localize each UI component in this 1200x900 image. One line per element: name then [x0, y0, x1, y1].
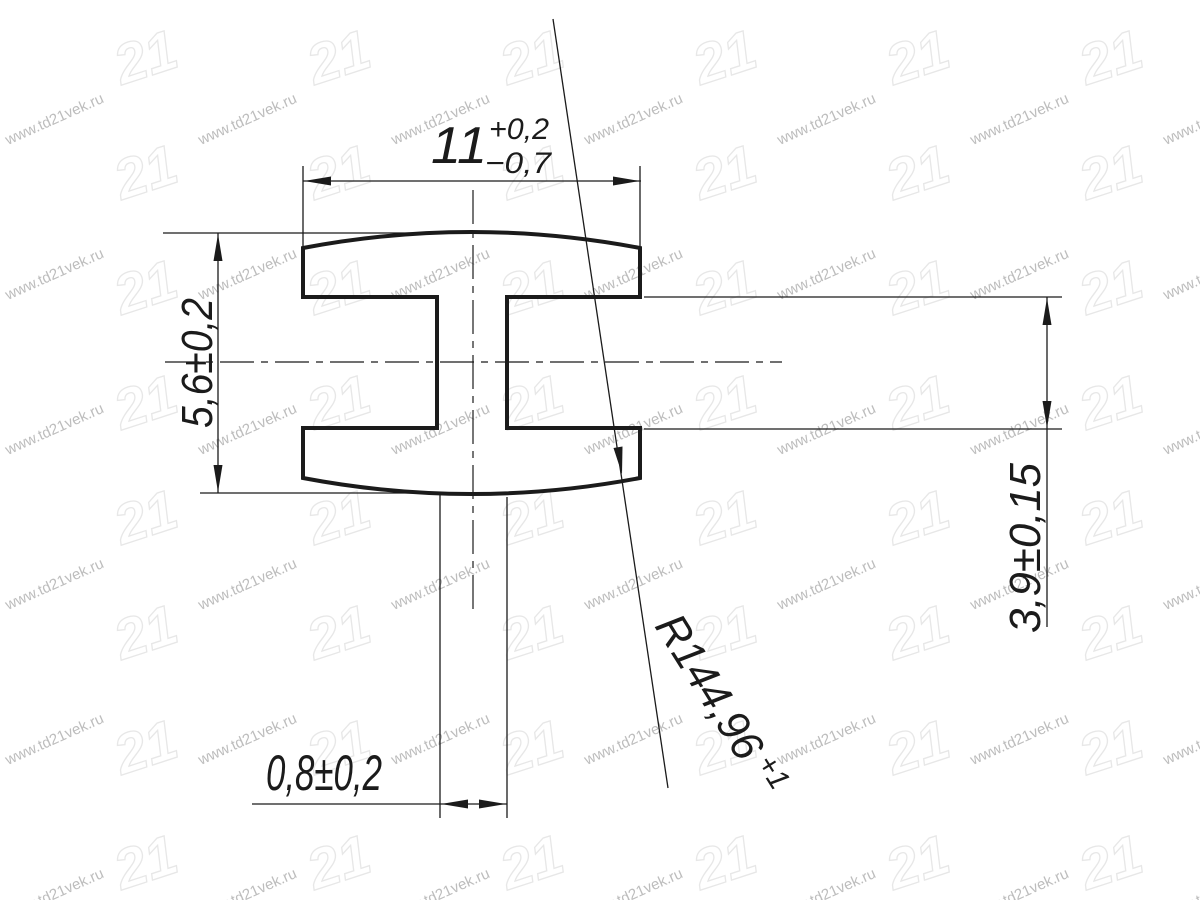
- svg-text:21: 21: [1070, 362, 1150, 441]
- svg-text:www.td21vek.ru: www.td21vek.ru: [2, 245, 107, 304]
- svg-text:21: 21: [105, 707, 185, 786]
- technical-drawing: 2121212121212121212121212121212121212121…: [0, 0, 1200, 900]
- svg-text:21: 21: [877, 822, 957, 900]
- svg-text:www.td21vek.ru: www.td21vek.ru: [1160, 245, 1200, 304]
- svg-text:www.td21vek.ru: www.td21vek.ru: [1160, 865, 1200, 900]
- svg-text:www.td21vek.ru: www.td21vek.ru: [388, 865, 493, 900]
- svg-text:21: 21: [298, 132, 378, 211]
- dim-width-upper-tolerance: +0,2: [489, 113, 549, 146]
- svg-text:21: 21: [877, 132, 957, 211]
- svg-text:21: 21: [1070, 132, 1150, 211]
- svg-text:www.td21vek.ru: www.td21vek.ru: [967, 90, 1072, 149]
- svg-text:21: 21: [298, 17, 378, 96]
- svg-text:www.td21vek.ru: www.td21vek.ru: [1160, 555, 1200, 614]
- svg-text:www.td21vek.ru: www.td21vek.ru: [967, 245, 1072, 304]
- svg-text:21: 21: [877, 707, 957, 786]
- svg-text:21: 21: [684, 362, 764, 441]
- arrowhead: [479, 800, 506, 809]
- svg-text:www.td21vek.ru: www.td21vek.ru: [967, 865, 1072, 900]
- svg-text:21: 21: [491, 822, 571, 900]
- dim-web-thickness: 0,8±0,2: [266, 745, 382, 801]
- svg-text:www.td21vek.ru: www.td21vek.ru: [2, 865, 107, 900]
- svg-text:www.td21vek.ru: www.td21vek.ru: [774, 245, 879, 304]
- svg-text:21: 21: [684, 132, 764, 211]
- arrowhead: [1043, 298, 1052, 325]
- svg-text:21: 21: [1070, 822, 1150, 900]
- svg-text:www.td21vek.ru: www.td21vek.ru: [581, 710, 686, 769]
- svg-text:21: 21: [877, 247, 957, 326]
- dim-inner-height: 3,9±0,15: [1001, 462, 1050, 633]
- arrowhead: [214, 234, 223, 261]
- svg-text:21: 21: [105, 132, 185, 211]
- svg-text:www.td21vek.ru: www.td21vek.ru: [2, 400, 107, 459]
- svg-text:www.td21vek.ru: www.td21vek.ru: [195, 555, 300, 614]
- svg-text:www.td21vek.ru: www.td21vek.ru: [2, 710, 107, 769]
- dim-width-value: 11: [431, 117, 487, 175]
- arrowhead: [613, 177, 640, 186]
- svg-text:www.td21vek.ru: www.td21vek.ru: [581, 90, 686, 149]
- svg-text:21: 21: [491, 707, 571, 786]
- svg-text:www.td21vek.ru: www.td21vek.ru: [2, 90, 107, 149]
- svg-text:www.td21vek.ru: www.td21vek.ru: [1160, 710, 1200, 769]
- svg-text:21: 21: [298, 247, 378, 326]
- svg-text:21: 21: [1070, 247, 1150, 326]
- drawing-canvas: 2121212121212121212121212121212121212121…: [0, 0, 1200, 900]
- svg-text:www.td21vek.ru: www.td21vek.ru: [195, 90, 300, 149]
- svg-text:www.td21vek.ru: www.td21vek.ru: [774, 865, 879, 900]
- arrowhead: [441, 800, 468, 809]
- svg-text:www.td21vek.ru: www.td21vek.ru: [774, 90, 879, 149]
- svg-text:21: 21: [298, 592, 378, 671]
- svg-text:21: 21: [1070, 477, 1150, 556]
- dim-outer-height: 5,6±0,2: [173, 298, 222, 428]
- svg-text:21: 21: [1070, 592, 1150, 671]
- svg-text:21: 21: [1070, 17, 1150, 96]
- svg-text:www.td21vek.ru: www.td21vek.ru: [774, 555, 879, 614]
- svg-text:www.td21vek.ru: www.td21vek.ru: [2, 555, 107, 614]
- svg-text:21: 21: [105, 477, 185, 556]
- arrowhead: [614, 447, 623, 475]
- centerlines: [165, 190, 782, 613]
- svg-text:21: 21: [684, 247, 764, 326]
- svg-text:21: 21: [491, 592, 571, 671]
- svg-text:21: 21: [877, 362, 957, 441]
- svg-text:21: 21: [684, 822, 764, 900]
- svg-text:www.td21vek.ru: www.td21vek.ru: [1160, 400, 1200, 459]
- dim-width-lower-tolerance: −0,7: [485, 147, 552, 180]
- svg-text:www.td21vek.ru: www.td21vek.ru: [1160, 90, 1200, 149]
- svg-text:21: 21: [877, 17, 957, 96]
- arrowhead: [214, 465, 223, 492]
- svg-text:www.td21vek.ru: www.td21vek.ru: [774, 710, 879, 769]
- svg-text:www.td21vek.ru: www.td21vek.ru: [195, 245, 300, 304]
- svg-text:21: 21: [105, 592, 185, 671]
- watermark-layer: 2121212121212121212121212121212121212121…: [2, 17, 1200, 900]
- svg-text:21: 21: [1070, 707, 1150, 786]
- svg-text:www.td21vek.ru: www.td21vek.ru: [967, 710, 1072, 769]
- svg-text:21: 21: [877, 477, 957, 556]
- svg-text:www.td21vek.ru: www.td21vek.ru: [195, 865, 300, 900]
- svg-text:21: 21: [105, 822, 185, 900]
- svg-text:21: 21: [105, 17, 185, 96]
- svg-text:21: 21: [684, 477, 764, 556]
- svg-text:www.td21vek.ru: www.td21vek.ru: [581, 555, 686, 614]
- svg-text:21: 21: [877, 592, 957, 671]
- svg-text:21: 21: [491, 247, 571, 326]
- svg-text:www.td21vek.ru: www.td21vek.ru: [581, 865, 686, 900]
- svg-text:21: 21: [684, 17, 764, 96]
- svg-text:21: 21: [298, 822, 378, 900]
